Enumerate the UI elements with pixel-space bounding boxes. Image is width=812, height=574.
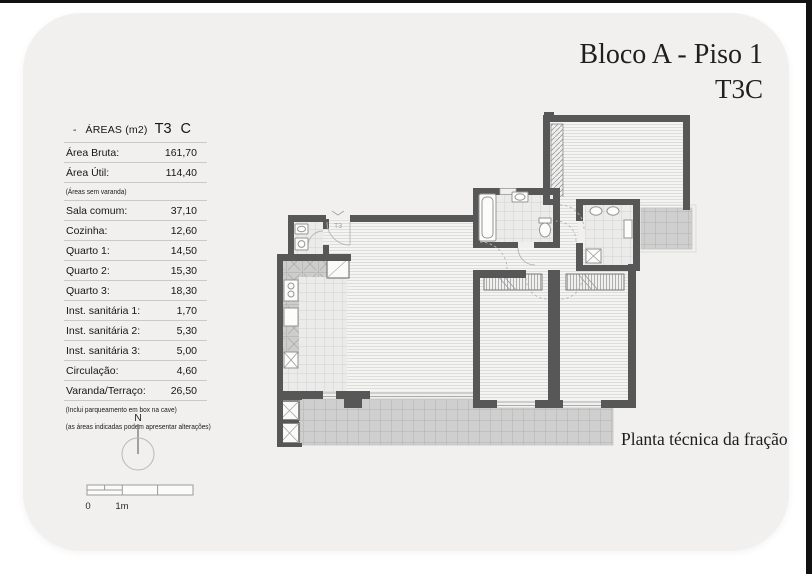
areas-title: ÁREAS (m2) bbox=[86, 124, 148, 136]
terrace-top-right bbox=[641, 208, 692, 249]
area-row: Inst. sanitária 2:5,30 bbox=[64, 321, 207, 341]
area-label: Inst. sanitária 1: bbox=[64, 305, 140, 317]
scale-bar: 0 1m bbox=[84, 483, 200, 513]
bath3-cabinet bbox=[624, 220, 632, 238]
bath3-sink-1 bbox=[590, 207, 602, 215]
area-value: 15,30 bbox=[171, 265, 207, 277]
bath1-sink bbox=[295, 224, 308, 234]
area-value: 37,10 bbox=[171, 205, 207, 217]
area-row: Circulação:4,60 bbox=[64, 361, 207, 381]
area-label: Cozinha: bbox=[64, 225, 107, 237]
area-label: Sala comum: bbox=[64, 205, 127, 217]
block-floor-title: Bloco A - Piso 1 bbox=[579, 38, 763, 71]
area-label: Inst. sanitária 2: bbox=[64, 325, 140, 337]
bath2-wc bbox=[540, 223, 551, 237]
areas-table-header: - ÁREAS (m2) T3 C bbox=[64, 121, 207, 143]
area-row: Inst. sanitária 1:1,70 bbox=[64, 301, 207, 321]
area-row: Sala comum:37,10 bbox=[64, 201, 207, 221]
area-value: 14,50 bbox=[171, 245, 207, 257]
area-row: Quarto 2:15,30 bbox=[64, 261, 207, 281]
area-label: Área Bruta: bbox=[64, 147, 119, 159]
header-dash: - bbox=[64, 124, 77, 136]
area-label: Quarto 2: bbox=[64, 265, 110, 277]
area-row: Área Bruta:161,70 bbox=[64, 143, 207, 163]
area-value: 4,60 bbox=[177, 365, 207, 377]
areas-table: - ÁREAS (m2) T3 C Área Bruta:161,70Área … bbox=[64, 121, 207, 435]
scale-zero-label: 0 bbox=[85, 501, 90, 512]
bath1-wc bbox=[295, 238, 308, 250]
area-value: 5,30 bbox=[177, 325, 207, 337]
area-row: Varanda/Terraço:26,50 bbox=[64, 381, 207, 401]
area-row: Inst. sanitária 3:5,00 bbox=[64, 341, 207, 361]
north-compass: N bbox=[116, 408, 160, 472]
entrance-marker bbox=[332, 211, 344, 215]
sheet-titles: Bloco A - Piso 1 T3C bbox=[579, 38, 763, 107]
area-row: Área Útil:114,40 bbox=[64, 163, 207, 183]
area-value: 161,70 bbox=[165, 147, 207, 159]
area-label: Inst. sanitária 3: bbox=[64, 345, 140, 357]
area-label: Área Útil: bbox=[64, 167, 109, 179]
area-value: 5,00 bbox=[177, 345, 207, 357]
bedroom3-floor bbox=[550, 122, 683, 207]
area-label: Circulação: bbox=[64, 365, 119, 377]
area-label: Varanda/Terraço: bbox=[64, 385, 146, 397]
area-row: Quarto 3:18,30 bbox=[64, 281, 207, 301]
bedroom2-wardrobe bbox=[566, 274, 624, 290]
kitchen-appliance bbox=[284, 308, 298, 326]
scale-meter-label: 1m bbox=[115, 501, 128, 512]
entrance-label: T3 bbox=[334, 223, 342, 230]
hall-floor-horizontal bbox=[480, 248, 585, 270]
north-label: N bbox=[134, 412, 142, 424]
bath2-wc-tank bbox=[539, 218, 551, 223]
page: Bloco A - Piso 1 T3C - ÁREAS (m2) T3 C Á… bbox=[0, 0, 812, 574]
window-top-edge bbox=[0, 0, 812, 3]
area-value: 26,50 bbox=[171, 385, 207, 397]
area-note: (Áreas sem varanda) bbox=[64, 183, 207, 201]
unit-type-title: T3C bbox=[579, 71, 763, 107]
area-value: 1,70 bbox=[177, 305, 207, 317]
floor-plan: T3 bbox=[270, 112, 702, 457]
area-row: Quarto 1:14,50 bbox=[64, 241, 207, 261]
area-note-text: (Áreas sem varanda) bbox=[64, 187, 126, 196]
area-label: Quarto 1: bbox=[64, 245, 110, 257]
area-label: Quarto 3: bbox=[64, 285, 110, 297]
area-value: 12,60 bbox=[171, 225, 207, 237]
area-value: 18,30 bbox=[171, 285, 207, 297]
plan-caption: Planta técnica da fração bbox=[621, 429, 788, 450]
type-letter: C bbox=[181, 121, 191, 137]
type-code: T3 bbox=[155, 121, 172, 137]
area-row: Cozinha:12,60 bbox=[64, 221, 207, 241]
area-value: 114,40 bbox=[166, 167, 207, 179]
areas-rows: Área Bruta:161,70Área Útil:114,40(Áreas … bbox=[64, 143, 207, 435]
window-right-edge bbox=[806, 0, 812, 574]
bath3-sink-2 bbox=[607, 207, 619, 215]
